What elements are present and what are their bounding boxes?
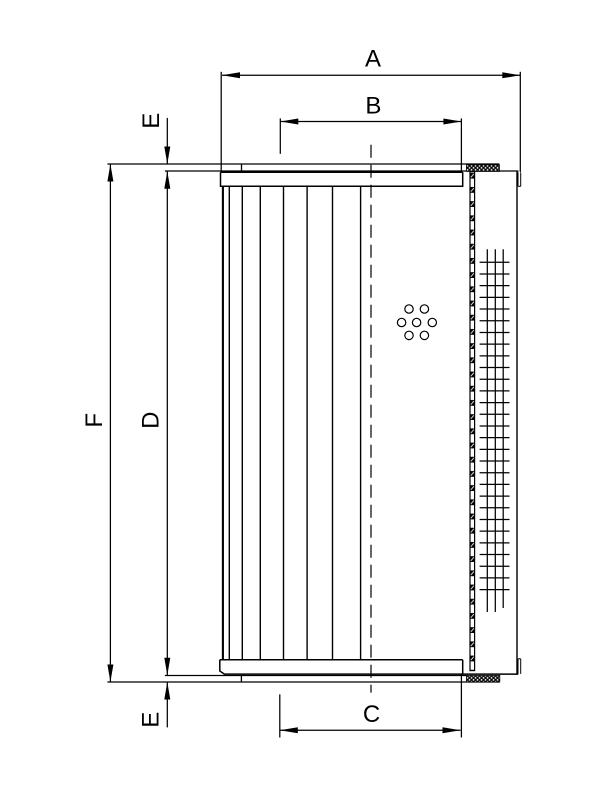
svg-text:D: D (138, 412, 165, 429)
svg-text:B: B (365, 92, 381, 119)
svg-text:E: E (138, 113, 165, 129)
svg-text:E: E (138, 712, 165, 728)
svg-text:F: F (81, 413, 108, 428)
svg-text:C: C (363, 701, 380, 728)
svg-text:A: A (365, 46, 381, 73)
